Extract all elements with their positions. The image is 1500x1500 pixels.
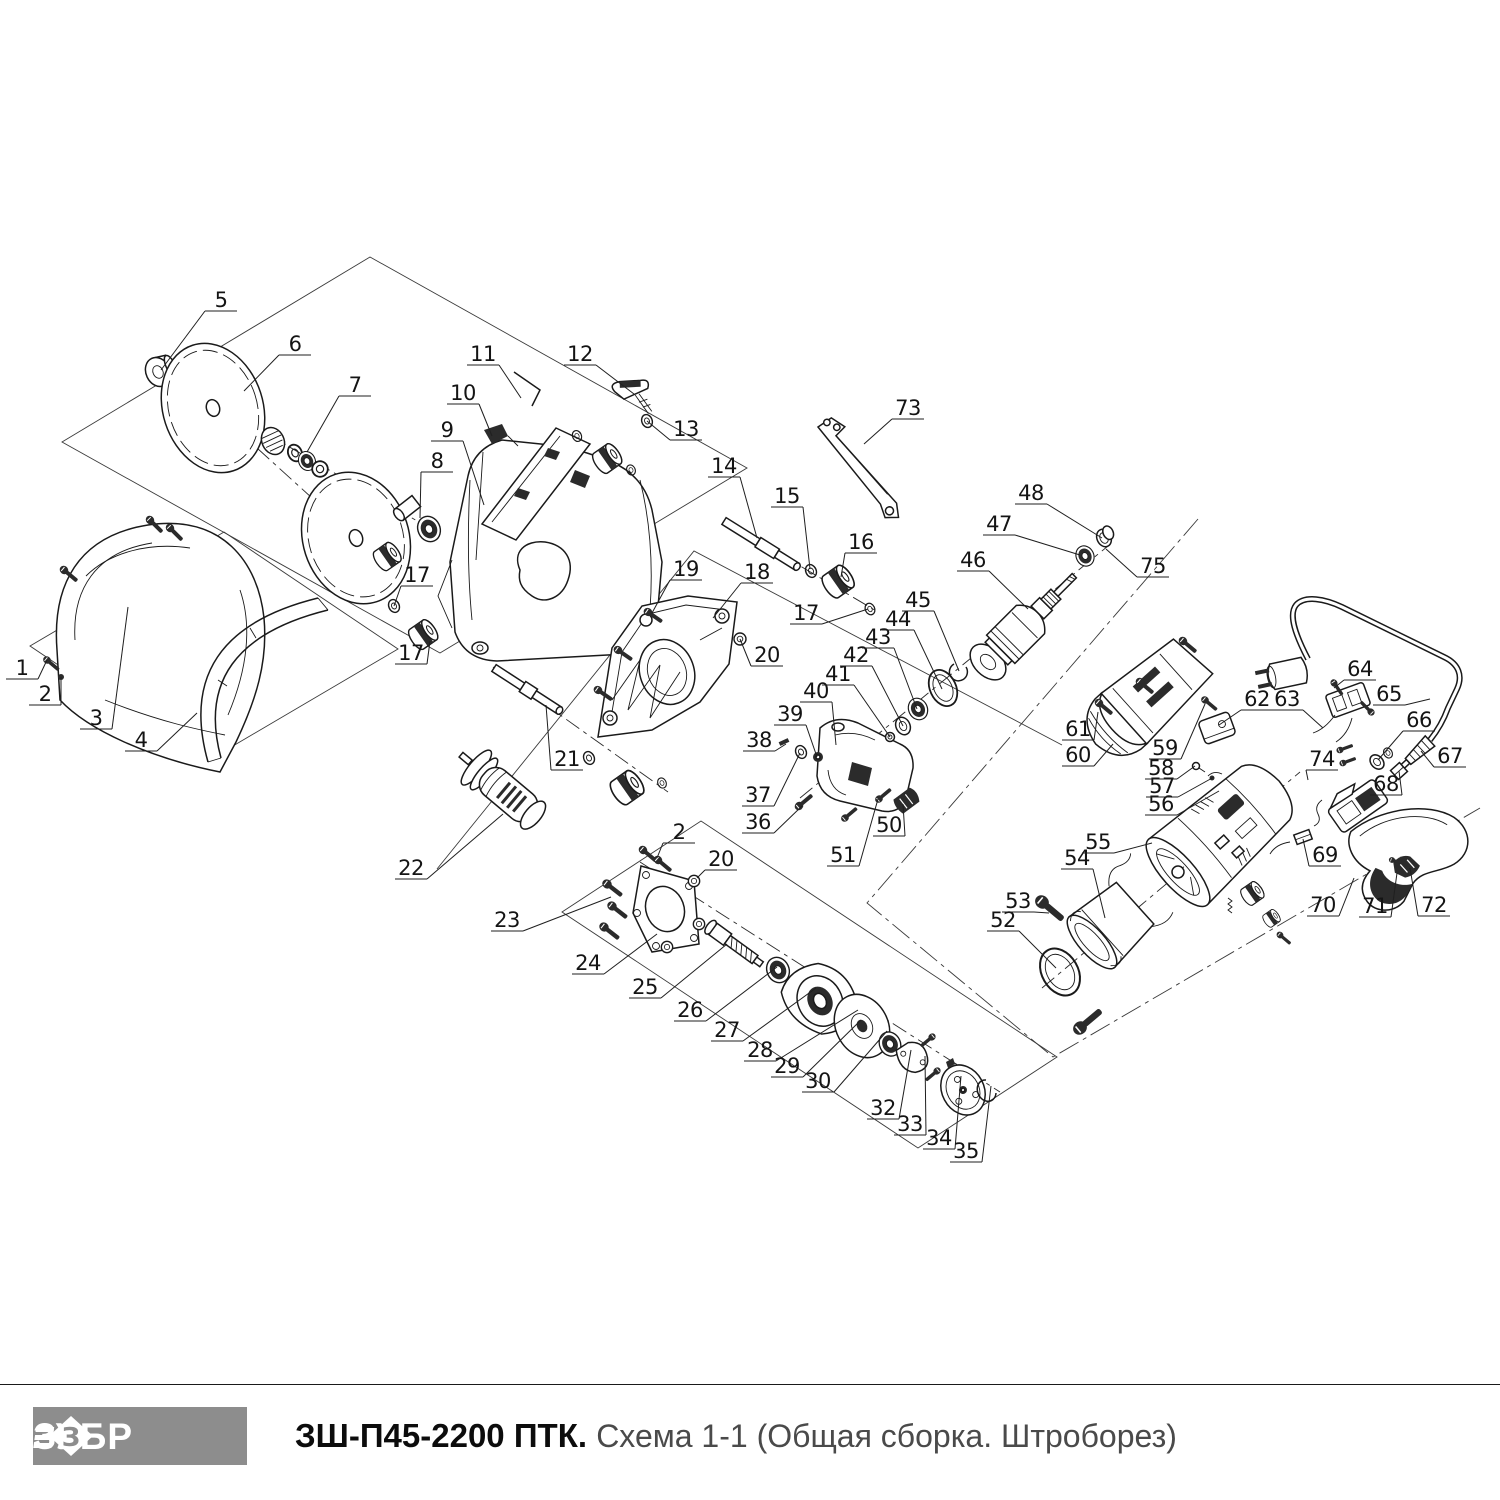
part-label-37: 37 [745, 783, 771, 807]
leader-line-23 [523, 897, 611, 931]
part-label-19: 19 [673, 557, 699, 581]
exploded-diagram: 1234567891011121314151617171718192021222… [0, 0, 1500, 1385]
leader-line-67 [1421, 751, 1434, 767]
part-label-18: 18 [744, 560, 770, 584]
part-label-20: 20 [754, 643, 780, 667]
leader-line-13 [647, 421, 670, 440]
part-label-16: 16 [848, 530, 874, 554]
brand-logo: З ЗУБР [33, 1407, 247, 1465]
part-label-25: 25 [632, 975, 658, 999]
leader-line-1 [38, 660, 47, 679]
circlip-45 [949, 664, 967, 681]
leader-line-45 [934, 611, 959, 671]
clutch-plate-34 [932, 1057, 993, 1123]
part-label-39: 39 [777, 702, 803, 726]
wire-connector [1294, 830, 1312, 845]
footer-title: ЗШ-П45-2200 ПТК. Схема 1-1 (Общая сборка… [295, 1407, 1177, 1465]
leader-line-36 [774, 806, 802, 833]
part-label-55: 55 [1085, 830, 1111, 854]
part-label-8: 8 [431, 449, 444, 473]
part-label-4: 4 [135, 728, 148, 752]
part-label-22: 22 [398, 856, 424, 880]
part-label-70: 70 [1310, 893, 1336, 917]
part-label-60: 60 [1065, 743, 1091, 767]
mount-plate [597, 844, 704, 953]
part-label-46: 46 [960, 548, 986, 572]
model-name: ЗШ-П45-2200 ПТК. [295, 1417, 596, 1455]
leader-line-39 [806, 725, 817, 757]
part-label-71: 71 [1362, 894, 1388, 918]
leader-line-2 [657, 843, 663, 858]
leader-line-20 [740, 639, 751, 666]
part-label-35: 35 [953, 1139, 979, 1163]
part-label-48: 48 [1018, 481, 1044, 505]
leader-line-46 [989, 571, 1028, 609]
part-label-33: 33 [897, 1112, 923, 1136]
footer-divider [0, 1384, 1500, 1385]
part-label-12: 12 [567, 342, 593, 366]
part-label-66: 66 [1406, 708, 1432, 732]
leader-line-53 [1034, 912, 1049, 913]
part-label-11: 11 [470, 342, 496, 366]
leader-line-7 [307, 396, 339, 452]
part-label-50: 50 [876, 813, 902, 837]
part-label-34: 34 [926, 1126, 952, 1150]
roller-shaft [491, 663, 565, 717]
part-label-73: 73 [895, 396, 921, 420]
part-label-3: 3 [90, 706, 103, 730]
leader-line-24 [604, 934, 657, 974]
terminal-block [1325, 682, 1371, 718]
part-label-21: 21 [554, 747, 580, 771]
part-label-38: 38 [746, 728, 772, 752]
leader-line-66 [1378, 731, 1403, 760]
part-label-2: 2 [39, 682, 52, 706]
air-ring [1032, 941, 1088, 1002]
leader-line-25 [661, 944, 727, 998]
part-label-64: 64 [1347, 657, 1373, 681]
hex-key [514, 372, 540, 406]
leader-line-58 [1177, 766, 1195, 779]
part-label-1: 1 [16, 656, 29, 680]
part-label-26: 26 [677, 998, 703, 1022]
blade-guard-cover [42, 514, 265, 772]
part-label-7: 7 [349, 373, 362, 397]
part-label-24: 24 [575, 951, 601, 975]
part-label-27: 27 [714, 1018, 740, 1042]
part-label-10: 10 [450, 381, 476, 405]
svg-text:З: З [62, 1423, 80, 1453]
leader-line-70 [1339, 878, 1354, 916]
part-label-68: 68 [1373, 772, 1399, 796]
leader-line-20 [697, 870, 705, 878]
part-label-29: 29 [774, 1054, 800, 1078]
diagram-art [42, 330, 1478, 1123]
part-label-65: 65 [1376, 682, 1402, 706]
leader-line-65 [1405, 699, 1430, 705]
part-label-13: 13 [673, 417, 699, 441]
leader-line-15 [803, 507, 810, 569]
part-label-74: 74 [1309, 747, 1335, 771]
part-label-32: 32 [870, 1096, 896, 1120]
saw-blade-1 [145, 330, 281, 486]
leader-line-43 [894, 648, 917, 709]
part-label-2: 2 [673, 820, 686, 844]
part-label-17: 17 [404, 563, 430, 587]
part-label-14: 14 [711, 454, 737, 478]
sleeve-48 [1093, 524, 1117, 549]
part-label-5: 5 [215, 288, 228, 312]
leader-line-69 [1303, 839, 1309, 866]
part-label-63: 63 [1274, 687, 1300, 711]
leader-line-37 [774, 753, 800, 806]
part-label-67: 67 [1437, 744, 1463, 768]
part-label-45: 45 [905, 588, 931, 612]
part-label-9: 9 [441, 418, 454, 442]
part-label-51: 51 [830, 843, 856, 867]
scheme-name: Схема 1-1 (Общая сборка. Штроборез) [596, 1418, 1177, 1455]
leader-line-48 [1047, 504, 1102, 538]
leader-line-63 [1303, 710, 1323, 728]
part-label-20: 20 [708, 847, 734, 871]
part-label-30: 30 [805, 1069, 831, 1093]
leader-line-22 [427, 814, 503, 879]
part-label-6: 6 [289, 332, 302, 356]
capacitor-block [1198, 711, 1236, 744]
part-label-72: 72 [1421, 893, 1447, 917]
leader-line-11 [499, 365, 521, 398]
leader-line-44 [914, 630, 942, 689]
side-handle [447, 738, 553, 837]
page: 1234567891011121314151617171718192021222… [0, 0, 1500, 1500]
spindle-bearing [414, 513, 445, 546]
part-label-23: 23 [494, 908, 520, 932]
part-label-61: 61 [1065, 717, 1091, 741]
part-label-28: 28 [747, 1038, 773, 1062]
part-label-53: 53 [1005, 889, 1031, 913]
leader-line-73 [864, 419, 892, 444]
power-cord [1293, 599, 1460, 740]
leader-line-75 [1106, 549, 1137, 577]
leader-line-17 [822, 609, 868, 624]
gasket-44 [923, 665, 963, 710]
brand-logo-icon: З [33, 1407, 95, 1465]
part-label-36: 36 [745, 810, 771, 834]
part-label-15: 15 [774, 484, 800, 508]
part-label-17: 17 [793, 601, 819, 625]
worm-shaft [703, 918, 767, 970]
leader-line-21 [546, 705, 551, 770]
part-label-59: 59 [1152, 736, 1178, 760]
leader-line-8 [420, 472, 421, 518]
pin-wrench [795, 414, 925, 522]
leader-line-47 [1015, 535, 1080, 555]
bearing-47 [1073, 543, 1098, 569]
part-label-62: 62 [1244, 687, 1270, 711]
part-label-47: 47 [986, 512, 1012, 536]
part-label-69: 69 [1312, 843, 1338, 867]
leader-line-74 [1306, 770, 1308, 780]
part-label-75: 75 [1140, 554, 1166, 578]
leader-line-26 [706, 967, 777, 1021]
part-label-17: 17 [398, 641, 424, 665]
saw-blade-2 [285, 458, 427, 618]
